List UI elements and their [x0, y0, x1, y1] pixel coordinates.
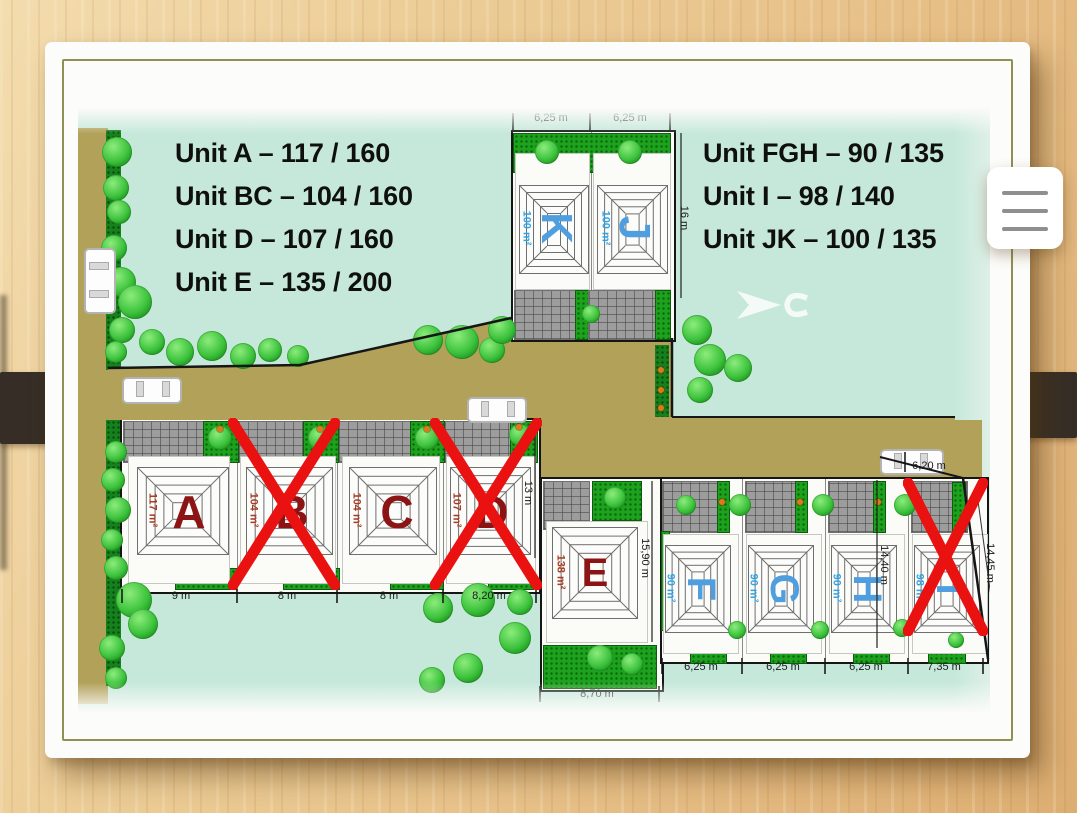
measurement-i-width: 7,35 m — [927, 661, 961, 673]
measurement-a-width: 9 m — [172, 590, 190, 602]
unit-letter-C: C — [380, 489, 413, 535]
measurement-d-width: 8,20 m — [472, 590, 506, 602]
unit-area-label-A: 117 m² — [147, 493, 158, 527]
planter — [795, 481, 808, 533]
measurement-kj-width-left: 6,25 m — [534, 112, 568, 124]
tree — [109, 317, 135, 343]
tree — [423, 593, 453, 623]
tree — [105, 341, 127, 363]
unit-area-label-F: 90 m² — [665, 574, 676, 603]
planter — [655, 290, 671, 340]
legend-line: Unit FGH – 90 / 135 — [703, 132, 944, 175]
sold-cross-D — [430, 418, 542, 590]
unit-area-label-J: 100 m² — [600, 211, 611, 246]
tree — [128, 609, 158, 639]
tree — [812, 494, 834, 516]
lamp-dot — [658, 405, 664, 411]
lamp-dot — [797, 499, 803, 505]
unit-area-label-E: 138 m² — [555, 555, 566, 590]
tree — [582, 305, 600, 323]
car-window — [136, 381, 144, 397]
car-top-view — [122, 377, 182, 404]
lamp-dot — [875, 499, 881, 505]
legend-line: Unit A – 117 / 160 — [175, 132, 413, 175]
tree — [99, 635, 125, 661]
site-plan-photo: K100 m²J100 m²A117 m²B104 m² C104 m²D107… — [0, 0, 1077, 813]
lamp-dot — [217, 426, 223, 432]
tree — [102, 137, 132, 167]
unit-area-label-H: 90 m² — [831, 574, 842, 603]
tree — [419, 667, 445, 693]
car-window — [507, 401, 515, 417]
legend-line: Unit BC – 104 / 160 — [175, 175, 413, 218]
tree — [729, 494, 751, 516]
unit-letter-A: A — [172, 489, 205, 535]
lamp-dot — [658, 387, 664, 393]
unit-area-label-C: 104 m² — [351, 493, 362, 528]
tree — [621, 653, 643, 675]
tree — [230, 343, 256, 369]
lamp-dot — [658, 367, 664, 373]
menu-button[interactable] — [987, 167, 1063, 249]
measurement-kj-depth: 16 m — [678, 206, 690, 230]
driveway — [745, 481, 802, 533]
measurement-e-width: 8,70 m — [580, 688, 614, 700]
tree — [101, 468, 125, 492]
sold-cross-I — [903, 478, 988, 636]
car-window — [89, 290, 109, 298]
unit-legend-right: Unit FGH – 90 / 135 Unit I – 98 / 140 Un… — [703, 132, 944, 261]
unit-letter-J: J — [612, 216, 656, 240]
measurement-g-width: 6,25 m — [766, 661, 800, 673]
tree — [694, 344, 726, 376]
tree — [535, 140, 559, 164]
tree — [445, 325, 479, 359]
planter — [717, 481, 730, 533]
tree — [724, 354, 752, 382]
unit-letter-F: F — [681, 577, 721, 601]
measurement-road-width: 6,20 m — [912, 460, 946, 472]
legend-line: Unit I – 98 / 140 — [703, 175, 944, 218]
unit-letter-K: K — [534, 212, 578, 244]
tree — [488, 316, 516, 344]
tree — [197, 331, 227, 361]
tree — [811, 621, 829, 639]
arrow-logo-icon — [735, 288, 811, 322]
tree — [618, 140, 642, 164]
tree — [413, 325, 443, 355]
tree — [604, 487, 626, 509]
tree — [101, 529, 123, 551]
tree — [676, 495, 696, 515]
unit-legend-left: Unit A – 117 / 160 Unit BC – 104 / 160 U… — [175, 132, 413, 304]
tree — [287, 345, 309, 367]
tree — [453, 653, 483, 683]
measurement-e-depth: 15,90 m — [639, 538, 651, 578]
measurement-c-width: 8 m — [380, 590, 398, 602]
unit-letter-E: E — [582, 553, 609, 593]
unit-area-label-K: 100 m² — [521, 211, 532, 246]
tree — [105, 497, 131, 523]
legend-line: Unit E – 135 / 200 — [175, 261, 413, 304]
car-top-view — [84, 248, 116, 314]
tree — [105, 667, 127, 689]
measurement-b-width: 8 m — [278, 590, 296, 602]
car-window — [162, 381, 170, 397]
tree — [587, 645, 613, 671]
tree — [107, 200, 131, 224]
unit-letter-G: G — [764, 573, 804, 604]
tree — [728, 621, 746, 639]
car-window — [89, 262, 109, 270]
tree — [499, 622, 531, 654]
tree — [139, 329, 165, 355]
tree — [166, 338, 194, 366]
measurement-h-width: 6,25 m — [849, 661, 883, 673]
tree — [103, 175, 129, 201]
legend-line: Unit JK – 100 / 135 — [703, 218, 944, 261]
measurement-hi-depth: 14,40 m — [878, 545, 890, 585]
car-window — [481, 401, 489, 417]
tree — [682, 315, 712, 345]
tree — [105, 441, 127, 463]
road-left-strip — [78, 128, 108, 704]
sold-cross-B — [228, 418, 340, 590]
measurement-f-width: 6,25 m — [684, 661, 718, 673]
tree — [104, 556, 128, 580]
plan-bottom-fade — [78, 682, 990, 712]
unit-area-label-G: 90 m² — [748, 574, 759, 603]
driveway-K — [514, 290, 577, 340]
tree — [118, 285, 152, 319]
lamp-dot — [719, 499, 725, 505]
measurement-kj-width-right: 6,25 m — [613, 112, 647, 124]
tree — [687, 377, 713, 403]
legend-line: Unit D – 107 / 160 — [175, 218, 413, 261]
tree — [258, 338, 282, 362]
car-window — [894, 453, 902, 469]
tree — [507, 589, 533, 615]
planter — [873, 481, 886, 533]
